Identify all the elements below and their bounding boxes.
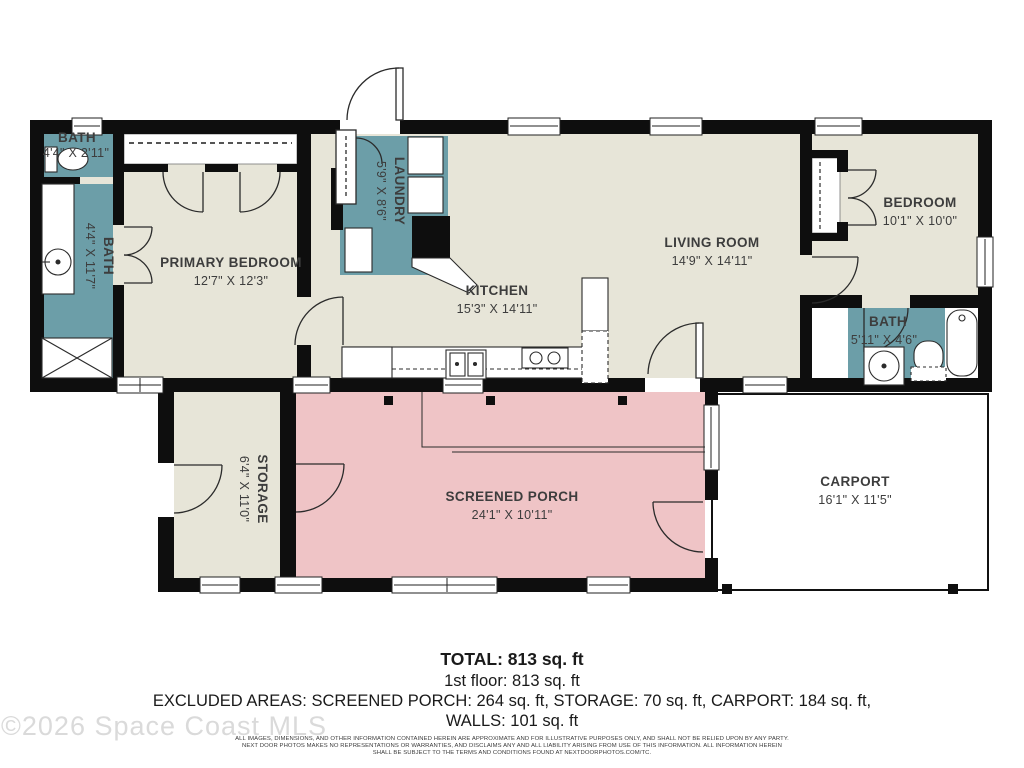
label-laundry-name: LAUNDRY xyxy=(392,157,407,225)
label-bath1-dims: 4'4" X 2'11" xyxy=(43,146,109,160)
window xyxy=(293,377,330,393)
label-primary-bedroom-dims: 12'7" X 12'3" xyxy=(194,274,269,288)
window xyxy=(508,118,560,135)
label-screened-porch-name: SCREENED PORCH xyxy=(445,489,578,504)
primary-closet xyxy=(124,134,297,164)
mls-watermark: ©2026 Space Coast MLS xyxy=(1,711,327,742)
room-carport xyxy=(712,394,988,590)
bath-right-door-area xyxy=(812,308,848,378)
label-kitchen-dims: 15'3" X 14'11" xyxy=(457,302,538,316)
disclaimer-line-2: NEXT DOOR PHOTOS MAKES NO REPRESENTATION… xyxy=(0,743,1024,750)
label-storage-name: STORAGE xyxy=(255,454,270,523)
window xyxy=(200,577,240,593)
vanity-sink-icon xyxy=(42,184,74,294)
window xyxy=(275,577,322,593)
window xyxy=(815,118,862,135)
label-screened-porch-dims: 24'1" X 10'11" xyxy=(472,508,553,522)
label-living-room-dims: 14'9" X 14'11" xyxy=(672,254,753,268)
fridge-icon xyxy=(342,347,392,378)
laundry-cabinet xyxy=(345,228,372,272)
stove-icon xyxy=(522,348,568,368)
label-living-room-name: LIVING ROOM xyxy=(664,235,759,250)
room-screened-porch xyxy=(292,392,705,578)
label-bath2-name: BATH xyxy=(101,237,116,275)
window xyxy=(392,577,497,593)
window xyxy=(977,237,993,287)
excluded-areas-text: EXCLUDED AREAS: SCREENED PORCH: 264 sq. … xyxy=(0,691,1024,711)
toilet-icon xyxy=(911,341,946,381)
window xyxy=(650,118,702,135)
bedroom-closet xyxy=(812,158,840,233)
label-bedroom-name: BEDROOM xyxy=(883,195,956,210)
label-carport-dims: 16'1" X 11'5" xyxy=(818,493,892,507)
label-bath2-dims: 4'4" X 11'7" xyxy=(83,223,97,289)
bathtub-icon xyxy=(947,310,977,376)
label-primary-bedroom-name: PRIMARY BEDROOM xyxy=(160,255,302,270)
label-laundry-dims: 5'9" X 8'6" xyxy=(374,161,388,221)
disclaimer-line-3: SHALL BE SUBJECT TO THE TERMS AND CONDIT… xyxy=(0,750,1024,757)
window xyxy=(743,377,787,393)
label-bath3-name: BATH xyxy=(869,314,907,329)
kitchen-corner-cabinet xyxy=(412,216,450,258)
label-bath1-name: BATH xyxy=(58,130,96,145)
first-floor-area-text: 1st floor: 813 sq. ft xyxy=(0,671,1024,691)
entry-door xyxy=(347,68,403,120)
window xyxy=(587,577,630,593)
total-area-text: TOTAL: 813 sq. ft xyxy=(0,648,1024,671)
label-bath3-dims: 5'11" X 4'6" xyxy=(851,333,917,347)
bath-right-vanity-icon xyxy=(864,347,904,385)
label-carport-name: CARPORT xyxy=(820,474,890,489)
shower-icon xyxy=(42,338,112,378)
kitchen-peninsula xyxy=(582,278,608,383)
label-bedroom-dims: 10'1" X 10'0" xyxy=(883,214,958,228)
kitchen-sink-icon xyxy=(446,350,486,379)
window xyxy=(704,405,719,470)
label-storage-dims: 6'4" X 11'0" xyxy=(237,456,251,522)
label-kitchen-name: KITCHEN xyxy=(466,283,529,298)
window xyxy=(117,377,163,393)
